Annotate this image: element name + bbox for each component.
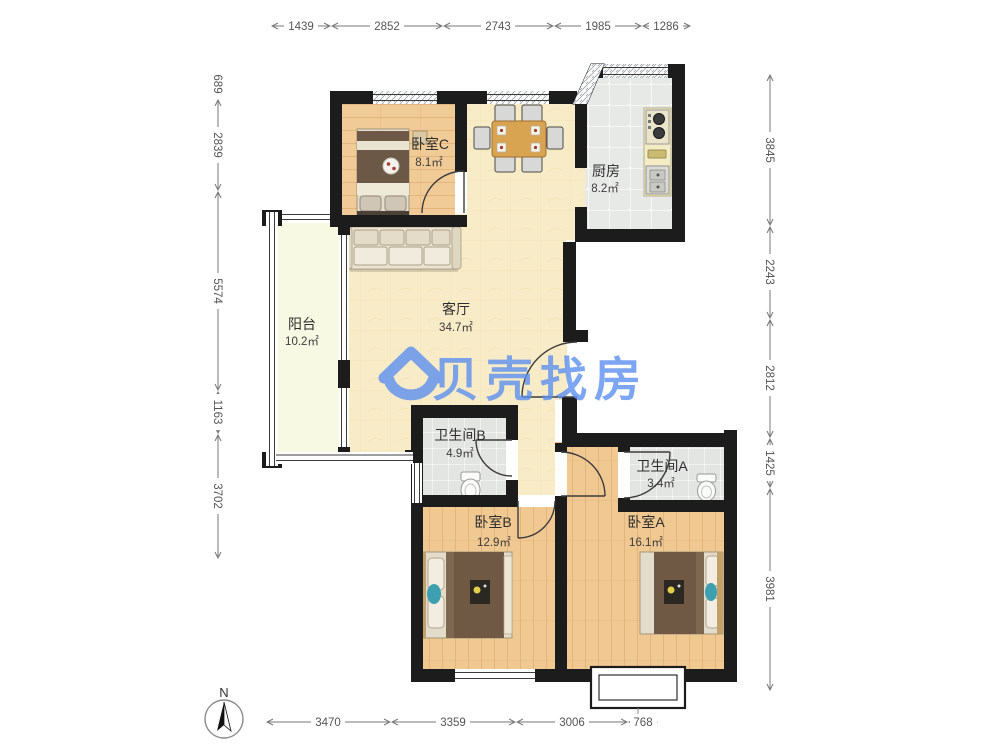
room-label-bathroom-a: 卫生间A	[636, 458, 688, 474]
room-area-bedroom-a: 16.1㎡	[629, 536, 663, 549]
window-bedroom-b-bottom	[455, 669, 535, 682]
ruler-top: 1439 2852 2743 1985 1286	[272, 19, 690, 33]
dim-left-2: 5574	[211, 278, 223, 304]
dim-right-1: 2243	[763, 259, 775, 285]
window-southwest-bottom	[276, 452, 413, 464]
dim-top-1: 2852	[374, 21, 400, 33]
dim-top-0: 1439	[288, 21, 314, 33]
room-label-kitchen: 厨房	[592, 163, 620, 179]
bed-bedroom-b	[420, 552, 512, 638]
dim-left-3: 1163	[211, 400, 223, 425]
bed-bedroom-a	[640, 552, 723, 634]
watermark-text: 贝壳找房	[432, 353, 648, 406]
dim-right-4: 3981	[763, 576, 775, 602]
room-area-living: 34.7㎡	[439, 321, 473, 334]
dim-bottom-3: 768	[633, 717, 652, 729]
room-label-bathroom-b: 卫生间B	[434, 427, 485, 443]
dining-chair	[495, 105, 515, 122]
dim-bottom-0: 3470	[315, 717, 341, 729]
window-balcony-top	[282, 212, 330, 223]
floor-plan-image: 贝壳找房 卧室C 8.1㎡ 厨房 8.2㎡ 客厅 34.7㎡ 阳台 10.2㎡ …	[0, 0, 1000, 750]
room-area-bathroom-b: 4.9㎡	[446, 447, 474, 460]
dim-left-0: 689	[211, 74, 223, 93]
room-area-kitchen: 8.2㎡	[591, 182, 619, 195]
dim-top-2: 2743	[485, 21, 511, 33]
dim-right-3: 1425	[763, 450, 775, 476]
compass: N	[205, 685, 243, 738]
window-balcony-left	[266, 212, 278, 466]
dim-left-1: 2839	[211, 132, 223, 158]
dining-chair	[522, 105, 542, 122]
room-area-bedroom-c: 8.1㎡	[415, 156, 443, 169]
dim-bottom-2: 3006	[559, 717, 585, 729]
floor-plan-canvas: 贝壳找房 卧室C 8.1㎡ 厨房 8.2㎡ 客厅 34.7㎡ 阳台 10.2㎡ …	[0, 0, 1000, 750]
dining-chair	[522, 155, 542, 172]
room-area-balcony: 10.2㎡	[285, 335, 319, 348]
room-area-bedroom-b: 12.9㎡	[477, 536, 511, 549]
dim-bottom-1: 3359	[440, 717, 466, 729]
bay-window	[591, 667, 685, 714]
window-balcony-living-lower	[339, 388, 349, 447]
ruler-left: 689 2839 5574 1163 3702	[211, 69, 228, 558]
window-dining-top	[487, 91, 549, 104]
toilet-bathroom-a	[697, 474, 716, 501]
room-area-bathroom-a: 3.4㎡	[647, 477, 675, 490]
window-bathroom-b-left	[412, 463, 422, 503]
dim-left-4: 3702	[211, 483, 223, 509]
window-bedroom-c-top	[373, 91, 437, 104]
window-kitchen-top	[603, 64, 668, 78]
room-label-balcony: 阳台	[288, 316, 316, 332]
kitchen-counter	[644, 108, 671, 196]
room-label-bedroom-a: 卧室A	[627, 514, 665, 530]
dim-top-4: 1286	[653, 21, 679, 33]
dim-right-0: 3845	[763, 137, 775, 163]
window-balcony-living-upper	[339, 235, 349, 360]
room-label-bedroom-c: 卧室C	[411, 136, 449, 152]
ruler-bottom: 3470 3359 3006 768	[267, 715, 657, 729]
dim-top-3: 1985	[585, 21, 611, 33]
sofa	[343, 227, 461, 272]
compass-north-label: N	[219, 685, 228, 700]
ruler-right: 3845 2243 2812 1425 3981	[763, 75, 780, 690]
dining-chair	[495, 155, 515, 172]
room-label-living: 客厅	[442, 301, 470, 317]
dining-chair	[474, 127, 490, 149]
dim-right-2: 2812	[763, 365, 775, 391]
room-label-bedroom-b: 卧室B	[474, 514, 511, 530]
dining-chair	[547, 127, 563, 149]
